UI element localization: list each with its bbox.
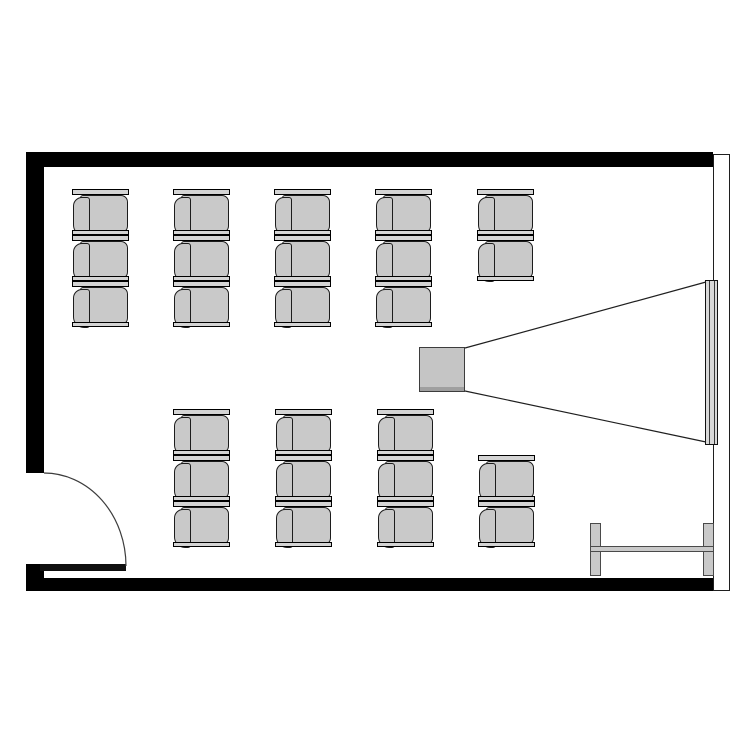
- chair-back-block: [377, 409, 434, 456]
- chair-front-block: [274, 189, 331, 236]
- chair-back-block: [173, 409, 230, 456]
- chair-back-block: [173, 501, 230, 548]
- chair-back-block: [275, 501, 332, 548]
- chair-back-block: [173, 455, 230, 502]
- chair-front-block: [173, 189, 230, 236]
- screen-inner-line: [714, 281, 715, 444]
- chair-front-block: [375, 235, 432, 282]
- chair-foot-rail: [72, 322, 129, 327]
- chair-back-block: [478, 501, 535, 548]
- chair-front-block: [72, 281, 129, 328]
- chair-back-block: [377, 501, 434, 548]
- chair-front-block: [173, 281, 230, 328]
- chair-foot-rail: [478, 542, 535, 547]
- chair-front-block: [274, 281, 331, 328]
- chairs-layer: [0, 0, 750, 750]
- chair-foot-rail: [274, 322, 331, 327]
- chair-front-block: [477, 235, 534, 282]
- chair-back-block: [275, 455, 332, 502]
- projector: [419, 347, 465, 392]
- chair-front-block: [375, 189, 432, 236]
- chair-front-block: [375, 281, 432, 328]
- table-rail: [590, 546, 714, 552]
- chair-foot-rail: [377, 542, 434, 547]
- chair-foot-rail: [275, 542, 332, 547]
- chair-front-block: [173, 235, 230, 282]
- chair-foot-rail: [477, 276, 534, 281]
- chair-foot-rail: [173, 542, 230, 547]
- projector-shade: [420, 387, 464, 391]
- chair-front-block: [477, 189, 534, 236]
- floor-plan: [0, 0, 750, 750]
- chair-back-block: [478, 455, 535, 502]
- chair-back-block: [377, 455, 434, 502]
- chair-foot-rail: [173, 322, 230, 327]
- chair-foot-rail: [375, 322, 432, 327]
- screen-inner-line: [709, 281, 710, 444]
- chair-front-block: [274, 235, 331, 282]
- chair-front-block: [72, 235, 129, 282]
- chair-back-block: [275, 409, 332, 456]
- projection-screen: [705, 280, 718, 445]
- chair-front-block: [72, 189, 129, 236]
